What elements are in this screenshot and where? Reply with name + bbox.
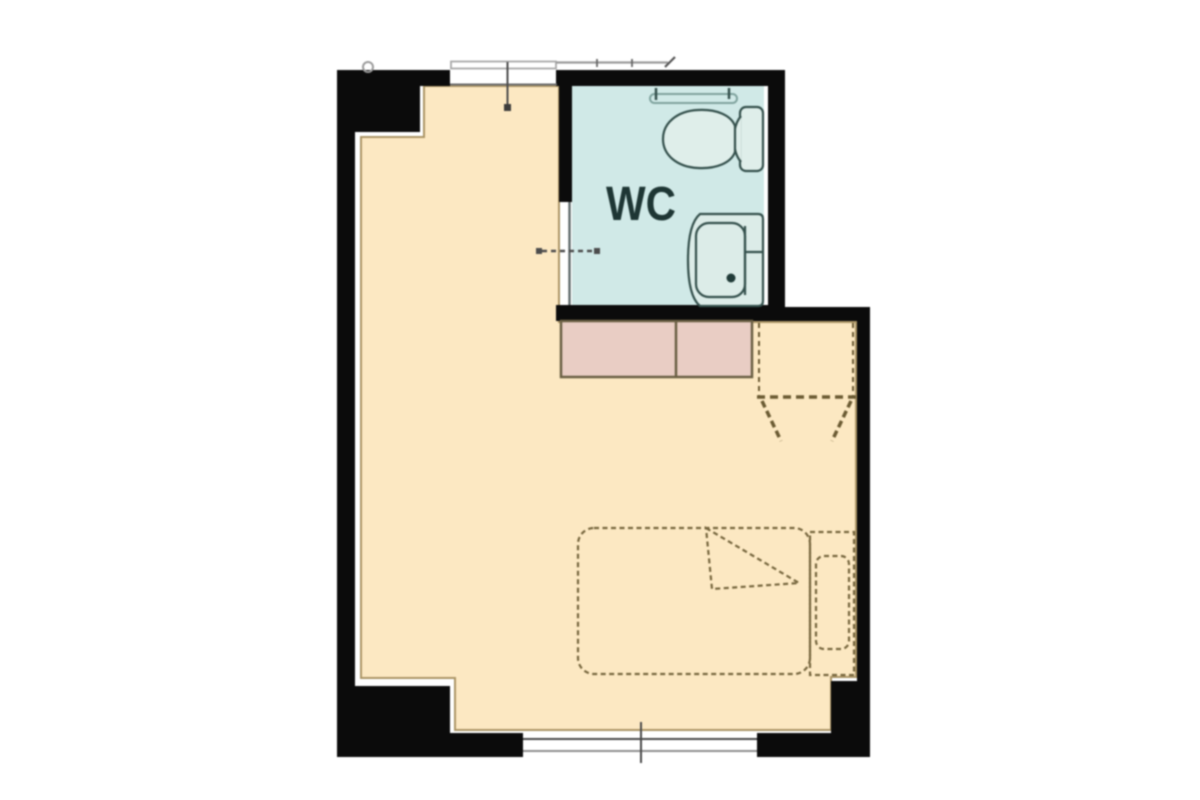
svg-text:WC: WC xyxy=(606,178,676,231)
